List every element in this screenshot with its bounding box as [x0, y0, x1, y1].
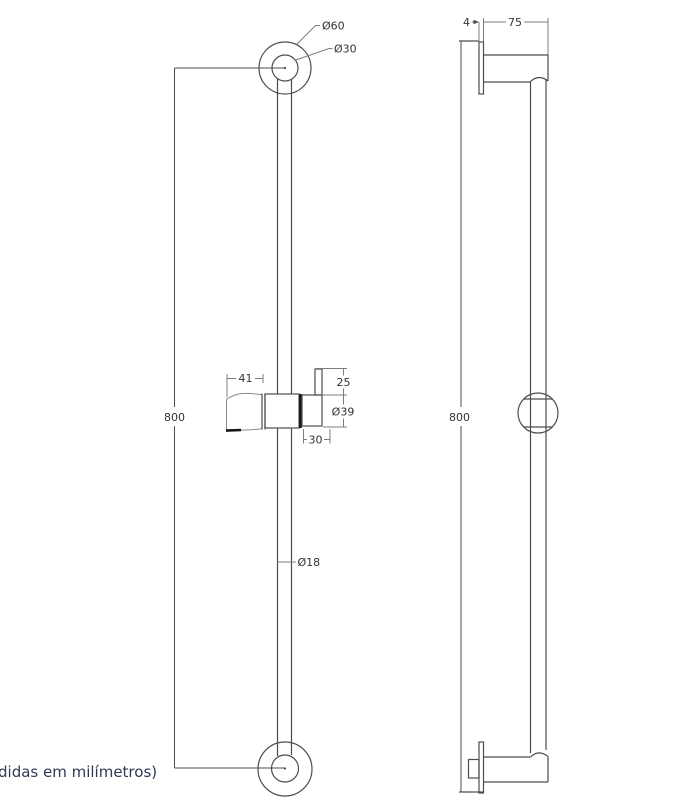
- bottom-screw-boss: [469, 760, 480, 779]
- dim-outer-diameter: Ø60: [297, 20, 345, 45]
- dim-slider-diameter-label: Ø39: [332, 406, 355, 419]
- bottom-bar-cap-arc: [531, 753, 549, 757]
- dim-knob-height-label: 25: [337, 376, 351, 389]
- front-view: 800 Ø60 Ø30 41: [161, 20, 357, 797]
- dim-wall-offset: 75: [484, 15, 549, 29]
- dim-bar-diameter: Ø18: [278, 556, 321, 569]
- slider-right-body: [302, 395, 322, 426]
- bottom-wall-plate: [479, 742, 484, 793]
- side-view: 4 75: [446, 15, 558, 793]
- holder-thick-mark: [226, 430, 241, 431]
- dim-height-side: 800: [446, 407, 473, 426]
- dim-outer-diameter-leader: [297, 26, 320, 45]
- slider-block: [265, 394, 299, 428]
- holder-top-edge: [227, 393, 263, 399]
- dim-bar-diameter-label: Ø18: [298, 556, 321, 569]
- top-wall-plate: [479, 42, 484, 94]
- dim-holder-width-label: 41: [239, 372, 253, 385]
- dim-inner-diameter-leader: [295, 49, 333, 61]
- dim-inner-diameter-label: Ø30: [334, 43, 357, 56]
- shower-rail-drawing: 800 Ø60 Ø30 41: [0, 0, 685, 800]
- units-caption: didas em milímetros): [0, 763, 157, 781]
- dim-plate-thickness-arrow: [474, 20, 480, 24]
- dim-outer-diameter-label: Ø60: [322, 20, 345, 33]
- dim-height-side-label: 800: [449, 411, 470, 424]
- dim-height-front-label: 800: [164, 411, 185, 424]
- dim-inner-diameter: Ø30: [295, 43, 357, 61]
- dim-height-front: 800: [161, 68, 285, 768]
- dim-holder-offset: 30: [304, 429, 331, 447]
- slider-knob: [315, 369, 322, 395]
- dim-wall-offset-label: 75: [508, 16, 522, 29]
- dim-plate-thickness-label: 4: [463, 16, 470, 29]
- dim-holder-offset-label: 30: [309, 434, 323, 447]
- dim-plate-thickness: 4: [463, 16, 479, 29]
- technical-drawing-page: 800 Ø60 Ø30 41: [0, 0, 685, 800]
- top-bar-cap-arc: [530, 77, 548, 82]
